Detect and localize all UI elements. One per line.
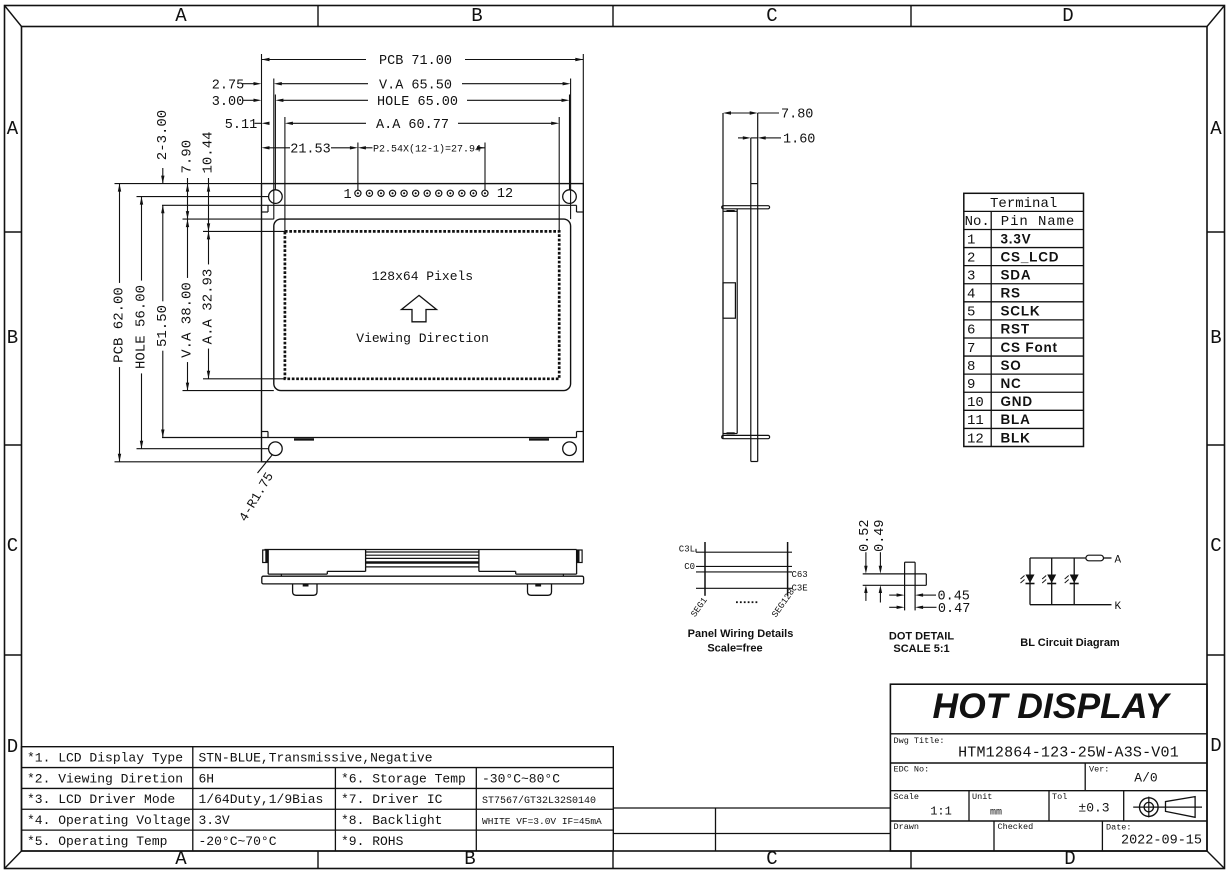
svg-text:WHITE VF=3.0V IF=45mA: WHITE VF=3.0V IF=45mA (482, 816, 602, 827)
svg-text:B: B (7, 327, 18, 349)
svg-text:7.90: 7.90 (180, 140, 196, 174)
svg-text:A/0: A/0 (1134, 771, 1157, 786)
svg-text:A: A (1115, 555, 1122, 567)
svg-text:8: 8 (967, 359, 975, 375)
svg-text:D: D (7, 736, 18, 758)
svg-text:Terminal: Terminal (990, 196, 1057, 212)
svg-text:V.A 65.50: V.A 65.50 (379, 79, 452, 94)
svg-text:C: C (766, 5, 777, 27)
svg-text:No.: No. (965, 214, 990, 230)
svg-text:12: 12 (497, 187, 513, 202)
svg-text:Pin Name: Pin Name (1001, 214, 1075, 230)
svg-text:NC: NC (1001, 376, 1022, 391)
svg-text:2: 2 (967, 250, 975, 266)
svg-text:SCLK: SCLK (1001, 304, 1041, 319)
svg-text:Tol: Tol (1052, 792, 1067, 802)
svg-text:7.80: 7.80 (781, 108, 813, 123)
svg-text:2-3.00: 2-3.00 (155, 110, 171, 160)
svg-text:0.47: 0.47 (938, 602, 970, 617)
svg-text:0.52: 0.52 (858, 519, 873, 551)
svg-text:*2. Viewing Diretion: *2. Viewing Diretion (27, 771, 183, 786)
svg-text:PCB 71.00: PCB 71.00 (379, 54, 452, 69)
svg-text:HOT DISPLAY: HOT DISPLAY (932, 686, 1171, 726)
svg-text:A: A (175, 5, 187, 27)
svg-text:CS Font: CS Font (1001, 340, 1058, 355)
svg-text:C0: C0 (684, 562, 695, 572)
svg-text:HOLE 56.00: HOLE 56.00 (134, 285, 150, 369)
svg-text:SCALE 5:1: SCALE 5:1 (893, 643, 949, 655)
svg-text:DOT DETAIL: DOT DETAIL (889, 631, 954, 643)
svg-text:128x64 Pixels: 128x64 Pixels (372, 269, 473, 284)
svg-text:C63: C63 (792, 570, 808, 580)
svg-text:Unit: Unit (972, 792, 992, 802)
svg-text:1/64Duty,1/9Bias: 1/64Duty,1/9Bias (199, 792, 324, 807)
svg-text:Scale: Scale (894, 792, 920, 802)
svg-text:*4. Operating Voltage: *4. Operating Voltage (27, 813, 191, 828)
svg-text:*6. Storage Temp: *6. Storage Temp (341, 771, 466, 786)
svg-text:51.50: 51.50 (155, 305, 171, 347)
svg-text:10.44: 10.44 (201, 131, 217, 173)
svg-text:C: C (1210, 535, 1221, 557)
svg-text:GND: GND (1001, 394, 1033, 409)
svg-text:Checked: Checked (998, 822, 1034, 832)
svg-text:1: 1 (967, 232, 975, 248)
svg-text:Dwg Title:: Dwg Title: (894, 736, 945, 746)
svg-text:Date:: Date: (1106, 823, 1132, 833)
svg-text:C3L: C3L (679, 545, 695, 555)
svg-text:A.A 32.93: A.A 32.93 (201, 269, 217, 345)
svg-text:BLA: BLA (1001, 412, 1031, 427)
svg-text:C: C (7, 535, 18, 557)
svg-text:B: B (471, 5, 482, 27)
svg-text:3.3V: 3.3V (1001, 231, 1032, 246)
svg-text:4: 4 (967, 287, 975, 303)
svg-text:*8. Backlight: *8. Backlight (341, 813, 442, 828)
svg-text:2022-09-15: 2022-09-15 (1121, 834, 1202, 849)
svg-text:5: 5 (967, 305, 975, 321)
svg-text:*1. LCD Display Type: *1. LCD Display Type (27, 751, 183, 766)
svg-text:-20°C~70°C: -20°C~70°C (199, 834, 277, 849)
svg-text:Viewing Direction: Viewing Direction (356, 331, 489, 346)
svg-text:STN-BLUE,Transmissive,Negative: STN-BLUE,Transmissive,Negative (199, 751, 433, 766)
svg-text:B: B (1210, 327, 1221, 349)
svg-text:2.75: 2.75 (212, 79, 244, 94)
svg-text:BLK: BLK (1001, 430, 1031, 445)
svg-text:1.60: 1.60 (783, 133, 815, 148)
svg-text:SO: SO (1001, 358, 1022, 373)
svg-text:A: A (7, 118, 19, 140)
svg-text:Drawn: Drawn (894, 822, 920, 832)
svg-text:3.3V: 3.3V (199, 813, 230, 828)
svg-text:*7. Driver IC: *7. Driver IC (341, 792, 443, 807)
svg-text:1: 1 (343, 188, 351, 203)
svg-text:P2.54X(12-1)=27.94: P2.54X(12-1)=27.94 (373, 144, 481, 156)
svg-text:BL Circuit Diagram: BL Circuit Diagram (1020, 637, 1120, 649)
svg-text:3: 3 (967, 268, 975, 284)
svg-text:5.11: 5.11 (225, 118, 257, 133)
svg-text:6H: 6H (199, 771, 215, 786)
svg-text:A: A (1210, 118, 1222, 140)
svg-text:SDA: SDA (1001, 267, 1032, 282)
svg-text:HOLE 65.00: HOLE 65.00 (377, 95, 458, 110)
svg-text:C: C (766, 848, 777, 870)
svg-text:mm: mm (990, 808, 1002, 819)
svg-text:HTM12864-123-25W-A3S-V01: HTM12864-123-25W-A3S-V01 (958, 745, 1179, 762)
svg-text:D: D (1210, 735, 1221, 757)
svg-text:RS: RS (1001, 286, 1021, 301)
svg-text:K: K (1115, 601, 1122, 613)
svg-text:*3. LCD Driver Mode: *3. LCD Driver Mode (27, 792, 175, 807)
svg-text:Ver:: Ver: (1089, 765, 1109, 775)
svg-text:0.49: 0.49 (873, 519, 888, 551)
svg-text:9: 9 (967, 377, 975, 393)
svg-text:1:1: 1:1 (930, 805, 952, 819)
svg-text:V.A 38.00: V.A 38.00 (180, 282, 196, 358)
svg-text:CS_LCD: CS_LCD (1001, 249, 1060, 264)
svg-text:A.A 60.77: A.A 60.77 (376, 118, 449, 133)
svg-text:*5. Operating Temp: *5. Operating Temp (27, 834, 167, 849)
svg-text:*9. ROHS: *9. ROHS (341, 834, 404, 849)
svg-text:D: D (1062, 5, 1073, 27)
svg-text:RST: RST (1001, 322, 1030, 337)
svg-text:-30°C~80°C: -30°C~80°C (482, 771, 560, 786)
svg-text:Panel Wiring Details: Panel Wiring Details (688, 628, 794, 640)
svg-text:Scale=free: Scale=free (707, 643, 762, 655)
svg-text:10: 10 (967, 395, 984, 411)
svg-text:EDC No:: EDC No: (894, 765, 930, 775)
svg-text:6: 6 (967, 323, 975, 339)
svg-text:ST7567/GT32L32S0140: ST7567/GT32L32S0140 (482, 795, 596, 807)
svg-text:21.53: 21.53 (290, 143, 331, 158)
svg-text:12: 12 (967, 431, 984, 447)
svg-text:3.00: 3.00 (212, 95, 244, 110)
svg-text:±0.3: ±0.3 (1078, 801, 1109, 816)
svg-text:7: 7 (967, 341, 975, 357)
svg-text:PCB 62.00: PCB 62.00 (112, 287, 128, 363)
svg-text:11: 11 (967, 413, 984, 429)
